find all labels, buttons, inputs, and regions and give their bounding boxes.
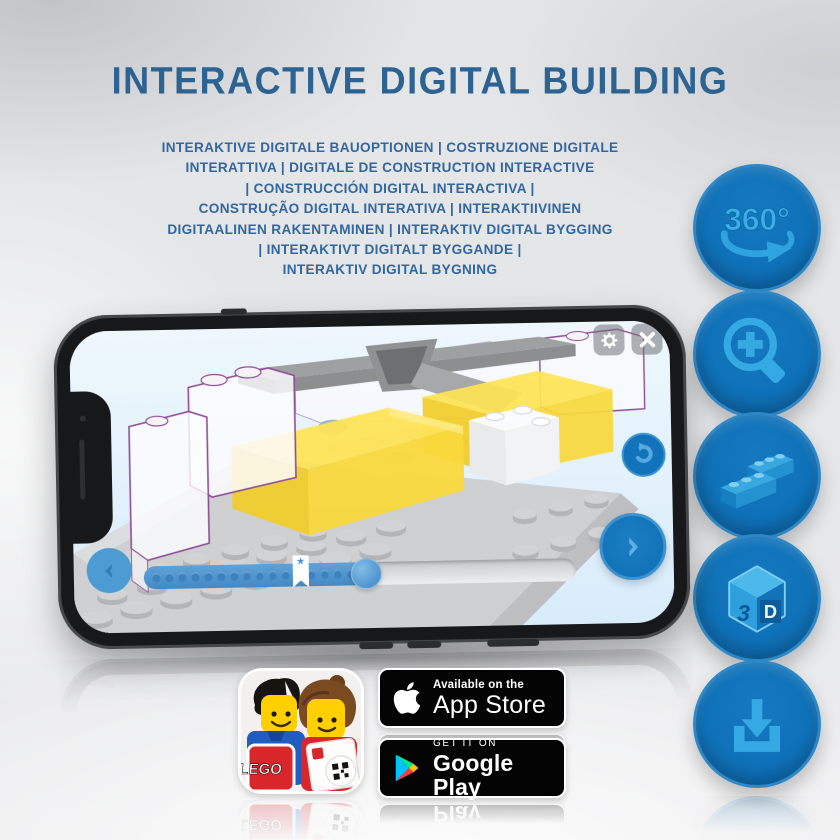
front-camera <box>80 415 86 421</box>
feature-360-button[interactable]: 360° <box>693 164 821 292</box>
svg-text:LEGO: LEGO <box>241 761 283 778</box>
feature-3d-button[interactable]: 3 D <box>693 534 821 662</box>
phone-notch <box>69 391 113 544</box>
power-button <box>221 308 247 314</box>
app-store-badge[interactable]: Available on the App Store <box>378 668 566 728</box>
subtitle-line: DIGITAALINEN RAKENTAMINEN | INTERAKTIV D… <box>68 220 712 240</box>
subtitle-line: | CONSTRUCCIÓN DIGITAL INTERACTIVA | <box>68 179 712 199</box>
phone-mockup: ★ <box>53 304 691 650</box>
zoom-in-icon <box>709 306 805 402</box>
close-button[interactable] <box>631 323 663 355</box>
svg-text:3: 3 <box>737 600 750 626</box>
earpiece-speaker <box>79 440 85 500</box>
lego-app-icon: LEGO <box>238 668 364 794</box>
lego-bricks-icon <box>709 428 805 524</box>
volume-button <box>359 642 393 650</box>
page-title: INTERACTIVE DIGITAL BUILDING <box>0 59 840 104</box>
subtitle-line: CONSTRUÇÃO DIGITAL INTERATIVA | INTERAKT… <box>68 199 712 219</box>
app-store-tagline: Available on the <box>433 679 546 691</box>
settings-button[interactable] <box>593 324 625 356</box>
rotation-360-icon: 360° <box>709 180 805 276</box>
google-play-badge[interactable]: GET IT ON Google Play <box>378 738 566 798</box>
subtitle-line: INTERATTIVA | DIGITALE DE CONSTRUCTION I… <box>68 158 712 178</box>
volume-button <box>407 641 441 649</box>
svg-text:D: D <box>764 601 777 622</box>
app-store-label: App Store <box>433 692 546 718</box>
download-icon <box>709 676 805 772</box>
volume-button <box>487 639 539 647</box>
close-icon <box>637 329 657 349</box>
chevron-right-icon <box>616 529 651 564</box>
3d-cube-icon: 3 D <box>709 550 805 646</box>
apple-icon <box>392 680 422 716</box>
feature-download-button[interactable] <box>693 660 821 788</box>
feature-zoom-button[interactable] <box>693 290 821 418</box>
progress-thumb[interactable] <box>351 558 383 590</box>
chevron-left-icon <box>100 561 118 579</box>
progress-dots <box>152 570 355 582</box>
lego-app-artwork: LEGO <box>241 671 361 791</box>
subtitle-block: INTERAKTIVE DIGITALE BAUOPTIONEN | COSTR… <box>68 138 712 281</box>
svg-text:360°: 360° <box>724 201 789 237</box>
phone-screen: ★ <box>69 320 675 633</box>
google-play-icon <box>392 751 422 785</box>
page: INTERACTIVE DIGITAL BUILDING INTERAKTIVE… <box>0 0 840 840</box>
feature-bricks-button[interactable] <box>693 412 821 540</box>
subtitle-line: | INTERAKTIVT DIGITALT BYGGANDE | <box>68 240 712 260</box>
rotate-arrow-icon <box>629 441 658 470</box>
progress-fill <box>144 562 367 589</box>
gear-icon <box>599 330 619 350</box>
subtitle-line: INTERAKTIVE DIGITALE BAUOPTIONEN | COSTR… <box>68 138 712 158</box>
google-play-tagline: GET IT ON <box>433 738 552 749</box>
subtitle-line: INTERAKTIV DIGITAL BYGNING <box>68 260 712 280</box>
google-play-label: Google Play <box>433 751 552 799</box>
